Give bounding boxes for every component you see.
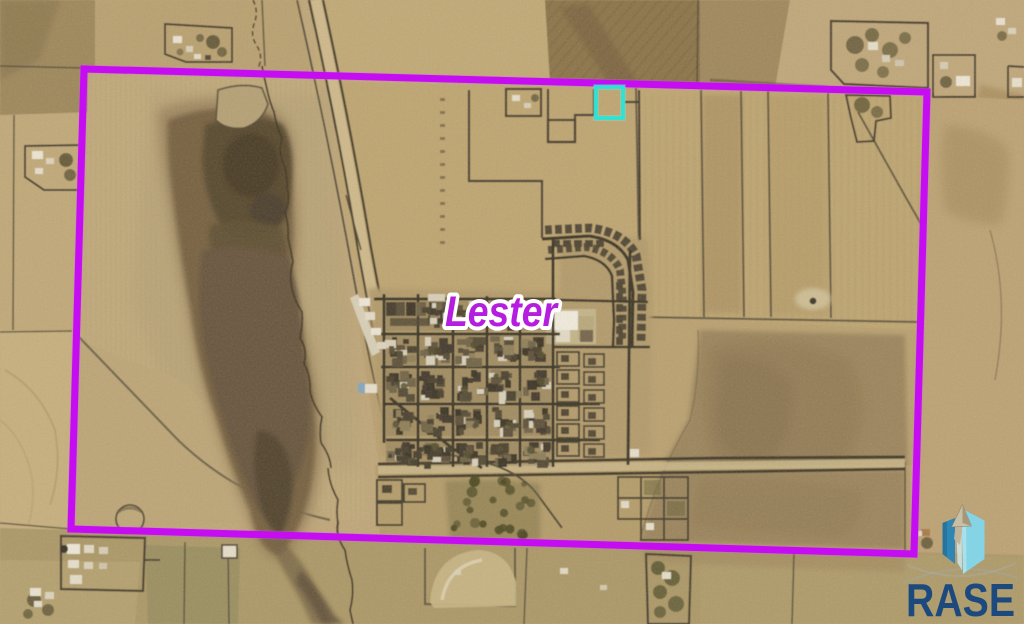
svg-text:Lester: Lester [445, 288, 559, 336]
svg-text:RASE: RASE [906, 574, 1015, 624]
